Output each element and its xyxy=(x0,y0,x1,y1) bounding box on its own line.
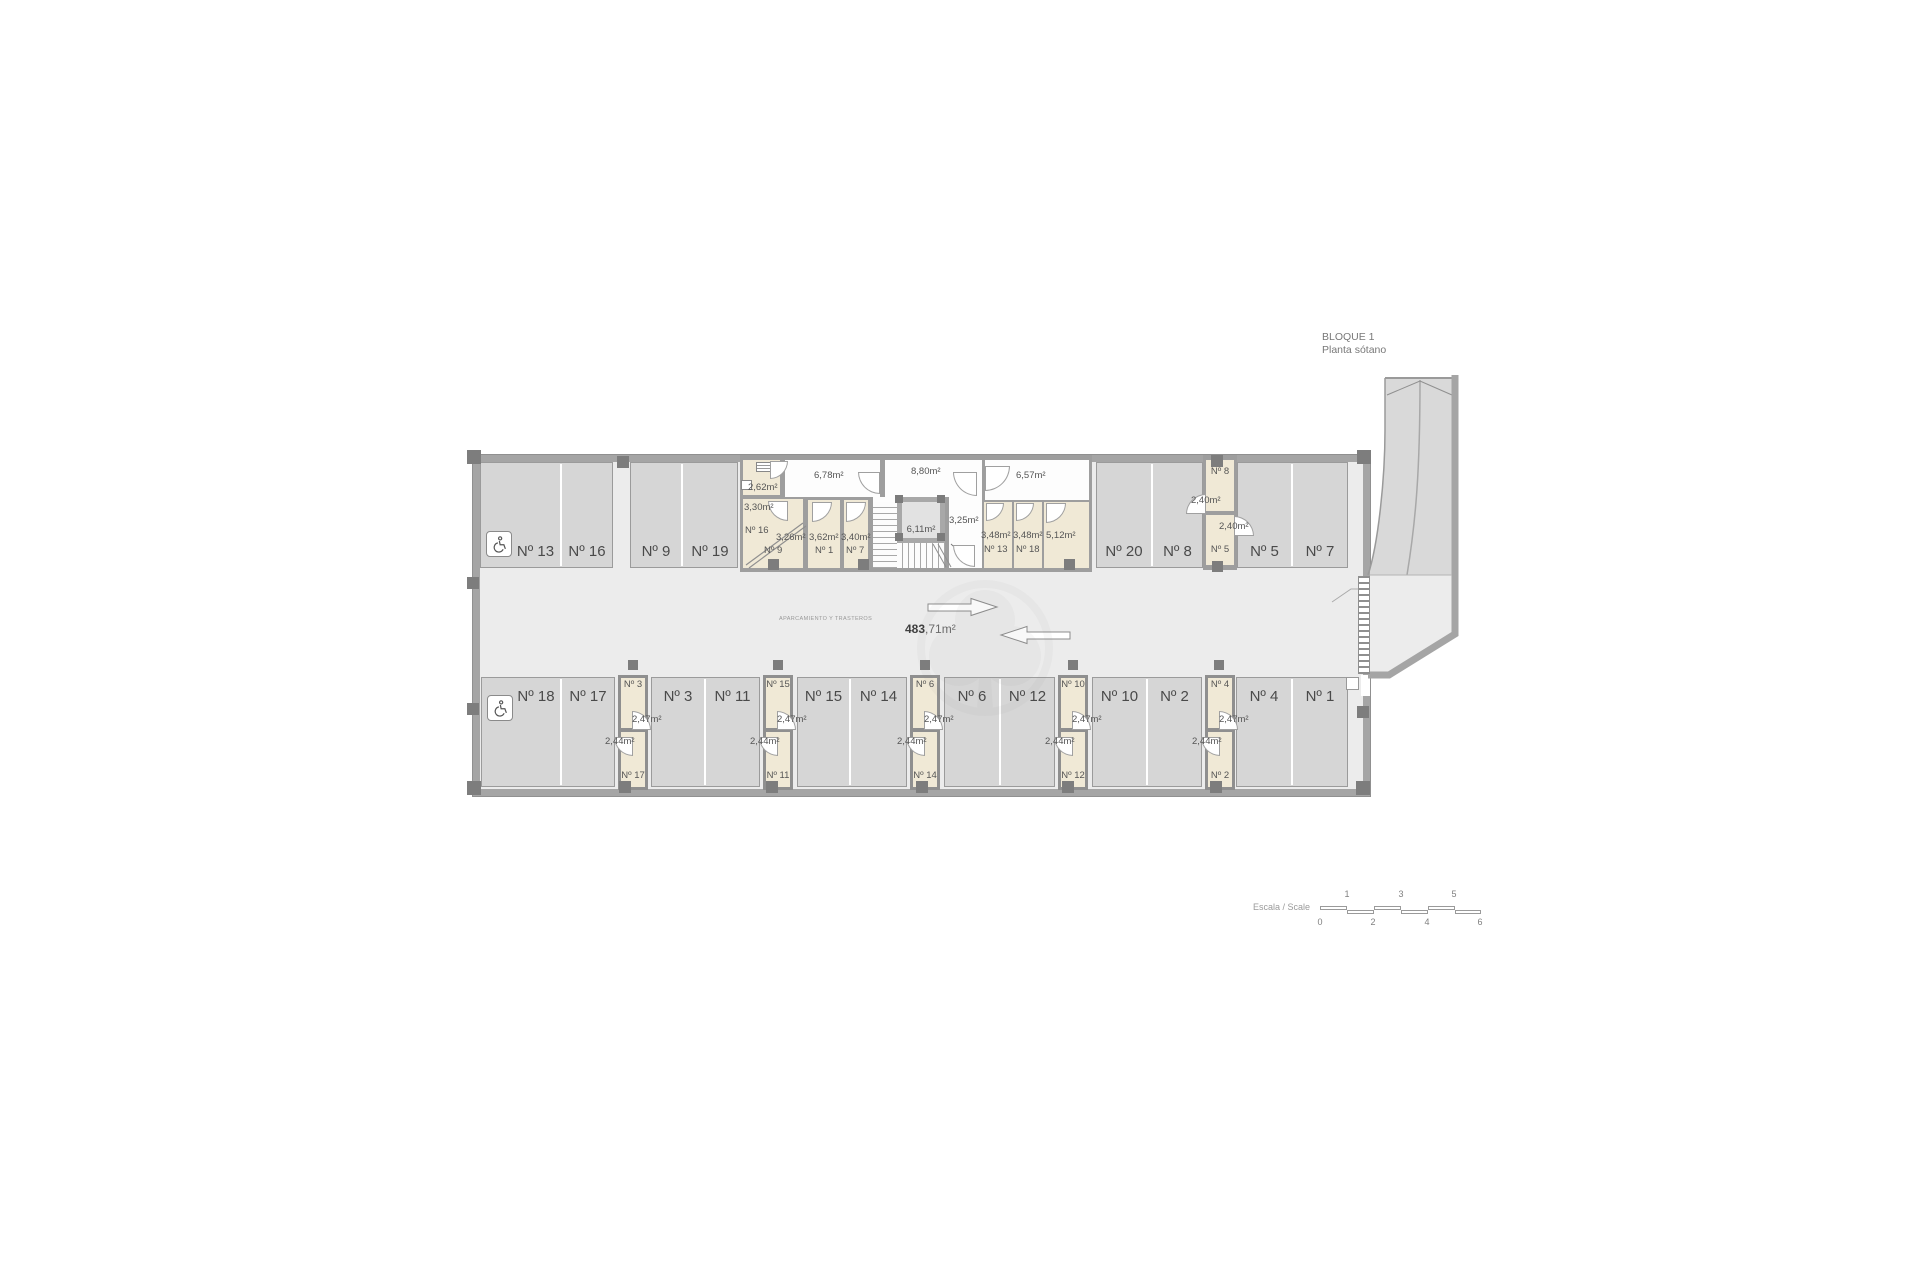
scale-segment xyxy=(1455,910,1481,914)
area-label: 2,44m² xyxy=(750,736,780,747)
scale-tick: 2 xyxy=(1367,917,1379,927)
structural-pillar xyxy=(1357,450,1371,464)
scale-segment xyxy=(1374,906,1401,910)
parking-stall-label: Nº 3 xyxy=(651,688,705,705)
area-label: 3,30m² xyxy=(744,502,774,513)
structural-pillar xyxy=(1356,781,1370,795)
storeroom-number: Nº 14 xyxy=(910,770,940,781)
total-area-int: 483 xyxy=(905,622,925,636)
accessible-parking-icon xyxy=(487,695,513,721)
parking-stall-label: Nº 13 xyxy=(510,543,561,560)
structural-pillar xyxy=(1357,706,1369,718)
parking-stall-label: Nº 19 xyxy=(682,543,738,560)
parking-stall-label: Nº 8 xyxy=(1152,543,1203,560)
parking-stall-label: Nº 5 xyxy=(1237,543,1292,560)
area-label: 6,11m² xyxy=(897,524,945,535)
storeroom-number: Nº 4 xyxy=(1205,679,1235,690)
structural-pillar xyxy=(467,577,479,589)
structural-pillar xyxy=(617,456,629,468)
ramp-lane-line xyxy=(1407,380,1420,575)
storeroom-number: Nº 16 xyxy=(745,525,769,536)
storeroom-number: Nº 2 xyxy=(1205,770,1235,781)
parking-stall-label: Nº 16 xyxy=(561,543,613,560)
ramp-direction-chevron xyxy=(1387,381,1452,395)
storeroom-number: Nº 11 xyxy=(763,770,793,781)
shaft-pillar xyxy=(895,495,903,503)
stair-flight xyxy=(873,502,897,568)
structural-pillar xyxy=(858,559,869,570)
area-label: 3,40m² xyxy=(841,532,871,543)
storeroom-number: Nº 6 xyxy=(910,679,940,690)
shelf-icon xyxy=(756,462,771,472)
area-label: 2,47m² xyxy=(1219,714,1249,725)
parking-stall-label: Nº 18 xyxy=(511,688,561,705)
area-label: 3,62m² xyxy=(809,532,839,543)
wheelchair-icon xyxy=(491,699,509,717)
storeroom-number: Nº 3 xyxy=(618,679,648,690)
parking-stall-label: Nº 10 xyxy=(1092,688,1147,705)
structural-pillar xyxy=(768,559,779,570)
accessible-parking-icon xyxy=(486,531,512,557)
wheelchair-icon xyxy=(490,535,508,553)
scale-tick: 3 xyxy=(1395,889,1407,899)
parking-stall-label: Nº 15 xyxy=(797,688,850,705)
plan-title-floor: Planta sótano xyxy=(1322,344,1386,357)
plan-title-block: BLOQUE 1 xyxy=(1322,331,1386,344)
storeroom-number: Nº 18 xyxy=(1016,544,1040,555)
parking-stall-label: Nº 20 xyxy=(1096,543,1152,560)
structural-pillar xyxy=(467,450,481,464)
area-label: 2,47m² xyxy=(632,714,662,725)
area-label: 3,25m² xyxy=(949,515,979,526)
area-label: 2,62m² xyxy=(748,482,778,493)
area-label: 8,80m² xyxy=(911,466,941,477)
structural-pillar xyxy=(773,660,783,670)
floor-plan-canvas: BLOQUE 1 Planta sótano xyxy=(0,0,1920,1280)
area-label: 5,12m² xyxy=(1046,530,1076,541)
scale-tick: 1 xyxy=(1341,889,1353,899)
area-label: 6,78m² xyxy=(814,470,844,481)
area-label: 2,40m² xyxy=(1191,495,1221,506)
area-label: 2,44m² xyxy=(605,736,635,747)
structural-pillar xyxy=(1210,781,1222,793)
structural-pillar xyxy=(1062,781,1074,793)
parking-stall-label: Nº 14 xyxy=(850,688,907,705)
area-label: 3,26m² xyxy=(776,532,806,543)
storeroom-number: Nº 12 xyxy=(1058,770,1088,781)
structural-pillar xyxy=(467,703,479,715)
structural-pillar xyxy=(467,781,481,795)
area-label: 6,57m² xyxy=(1016,470,1046,481)
storeroom-number: Nº 13 xyxy=(984,544,1008,555)
scale-caption: Escala / Scale xyxy=(1253,902,1310,912)
shaft-pillar xyxy=(937,495,945,503)
parking-stall-label: Nº 1 xyxy=(1292,688,1348,705)
storeroom-number: Nº 5 xyxy=(1203,544,1237,555)
area-label: 3,48m² xyxy=(981,530,1011,541)
rolling-gate-hatch xyxy=(1358,576,1370,674)
parking-stall-label: Nº 2 xyxy=(1147,688,1202,705)
total-area-frac: ,71m² xyxy=(925,622,956,636)
parking-stall-label: Nº 11 xyxy=(705,688,760,705)
area-label: 2,47m² xyxy=(924,714,954,725)
storeroom-number: Nº 1 xyxy=(815,545,833,556)
area-label: 3,48m² xyxy=(1013,530,1043,541)
storeroom-number: Nº 7 xyxy=(846,545,864,556)
total-area-label: 483,71m² xyxy=(905,622,956,636)
ramp-floor xyxy=(1370,378,1452,575)
parking-stall-label: Nº 12 xyxy=(1000,688,1055,705)
extension-floor xyxy=(1370,575,1452,672)
scale-tick: 5 xyxy=(1448,889,1460,899)
area-label: 2,47m² xyxy=(777,714,807,725)
structural-pillar xyxy=(916,781,928,793)
exit-door-opening xyxy=(1361,675,1370,696)
structural-pillar xyxy=(920,660,930,670)
structural-pillar xyxy=(1068,660,1078,670)
structural-pillar xyxy=(1064,559,1075,570)
area-label: 2,47m² xyxy=(1072,714,1102,725)
structural-pillar xyxy=(1212,561,1223,572)
storeroom-number: Nº 15 xyxy=(763,679,793,690)
scale-segment xyxy=(1428,906,1455,910)
parking-stall-label: Nº 7 xyxy=(1292,543,1348,560)
area-label: 2,40m² xyxy=(1219,521,1249,532)
storeroom-number: Nº 17 xyxy=(618,770,648,781)
scale-tick: 0 xyxy=(1314,917,1326,927)
structural-pillar xyxy=(619,781,631,793)
scale-segment xyxy=(1347,910,1374,914)
parking-stall-label: Nº 4 xyxy=(1236,688,1292,705)
scale-tick: 4 xyxy=(1421,917,1433,927)
parking-stall-label: Nº 9 xyxy=(630,543,682,560)
plan-title: BLOQUE 1 Planta sótano xyxy=(1322,331,1386,357)
stair-lower-flight xyxy=(897,543,945,568)
parking-stall-label: Nº 6 xyxy=(944,688,1000,705)
area-label: 2,44m² xyxy=(1192,736,1222,747)
storeroom-number: Nº 9 xyxy=(764,545,782,556)
ramp-left-edge xyxy=(1368,378,1385,575)
area-label: 2,44m² xyxy=(1045,736,1075,747)
parking-stall-label: Nº 17 xyxy=(561,688,615,705)
structural-pillar xyxy=(1214,660,1224,670)
storeroom-number: Nº 10 xyxy=(1058,679,1088,690)
zone-label: APARCAMIENTO Y TRASTEROS xyxy=(779,616,872,622)
scale-tick: 6 xyxy=(1474,917,1486,927)
structural-pillar xyxy=(766,781,778,793)
structural-pillar xyxy=(628,660,638,670)
scale-segment xyxy=(1320,906,1347,910)
extension-outer-wall xyxy=(1368,375,1455,675)
storeroom-number: Nº 8 xyxy=(1203,466,1237,477)
scale-segment xyxy=(1401,910,1428,914)
area-label: 2,44m² xyxy=(897,736,927,747)
